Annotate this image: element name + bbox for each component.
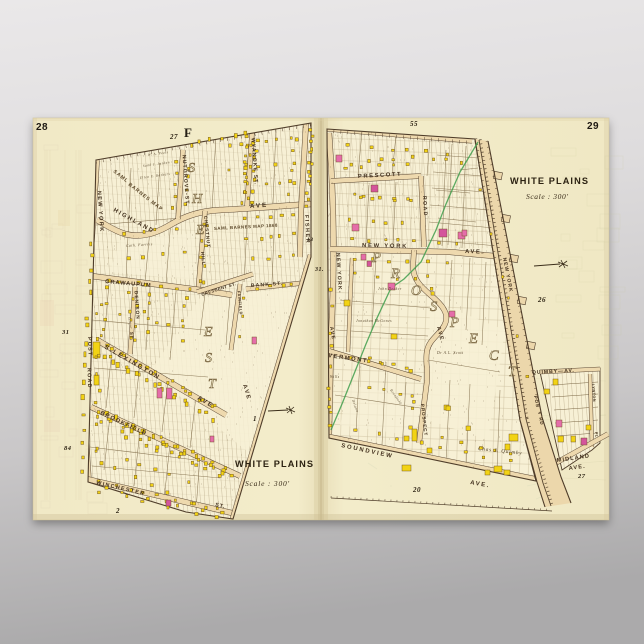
svg-text:ROAD: ROAD [421, 196, 428, 217]
svg-text:28: 28 [36, 122, 48, 133]
svg-text:55: 55 [410, 120, 418, 128]
svg-text:T: T [508, 364, 517, 380]
svg-text:E: E [195, 223, 205, 238]
svg-text:PL: PL [594, 432, 598, 438]
svg-text:Scale : 300′: Scale : 300′ [245, 479, 290, 488]
svg-text:WHITE PLAINS: WHITE PLAINS [510, 176, 589, 186]
svg-text:20: 20 [412, 486, 421, 494]
svg-text:2: 2 [115, 507, 120, 515]
svg-text:Jonathan McGones: Jonathan McGones [356, 319, 392, 323]
svg-text:E: E [203, 325, 213, 340]
svg-text:NEW YORK: NEW YORK [362, 243, 408, 250]
svg-text:F: F [184, 125, 192, 140]
svg-text:S: S [430, 299, 438, 315]
svg-text:POST: POST [86, 337, 93, 357]
svg-text:E: E [468, 331, 478, 347]
svg-text:AVE.: AVE. [465, 249, 485, 256]
svg-text:WHITE PLAINS: WHITE PLAINS [235, 459, 314, 469]
svg-text:1: 1 [253, 415, 257, 423]
svg-text:ROAD: ROAD [86, 368, 93, 389]
svg-text:AVE: AVE [250, 202, 269, 210]
svg-text:27: 27 [169, 133, 178, 141]
svg-text:C: C [489, 348, 499, 364]
svg-text:29: 29 [587, 121, 599, 132]
svg-text:31.: 31. [314, 267, 324, 273]
svg-text:84: 84 [64, 445, 72, 452]
svg-text:H: H [191, 192, 203, 207]
svg-text:T: T [208, 377, 217, 392]
svg-text:31: 31 [61, 329, 70, 336]
svg-text:S: S [205, 351, 212, 366]
svg-text:O: O [411, 283, 422, 299]
svg-text:John Decker: John Decker [378, 287, 402, 291]
svg-text:27: 27 [577, 473, 586, 480]
svg-text:Dr A.L. Scott: Dr A.L. Scott [436, 351, 464, 355]
svg-text:S: S [188, 161, 195, 176]
svg-text:26: 26 [537, 296, 546, 304]
svg-text:P: P [449, 315, 459, 331]
svg-text:Wills: Wills [330, 375, 340, 379]
svg-text:R: R [390, 266, 400, 282]
svg-text:13: 13 [307, 237, 314, 243]
svg-text:ST.: ST. [129, 332, 135, 341]
svg-text:Scale : 300′: Scale : 300′ [526, 192, 569, 201]
svg-text:P: P [371, 250, 381, 266]
